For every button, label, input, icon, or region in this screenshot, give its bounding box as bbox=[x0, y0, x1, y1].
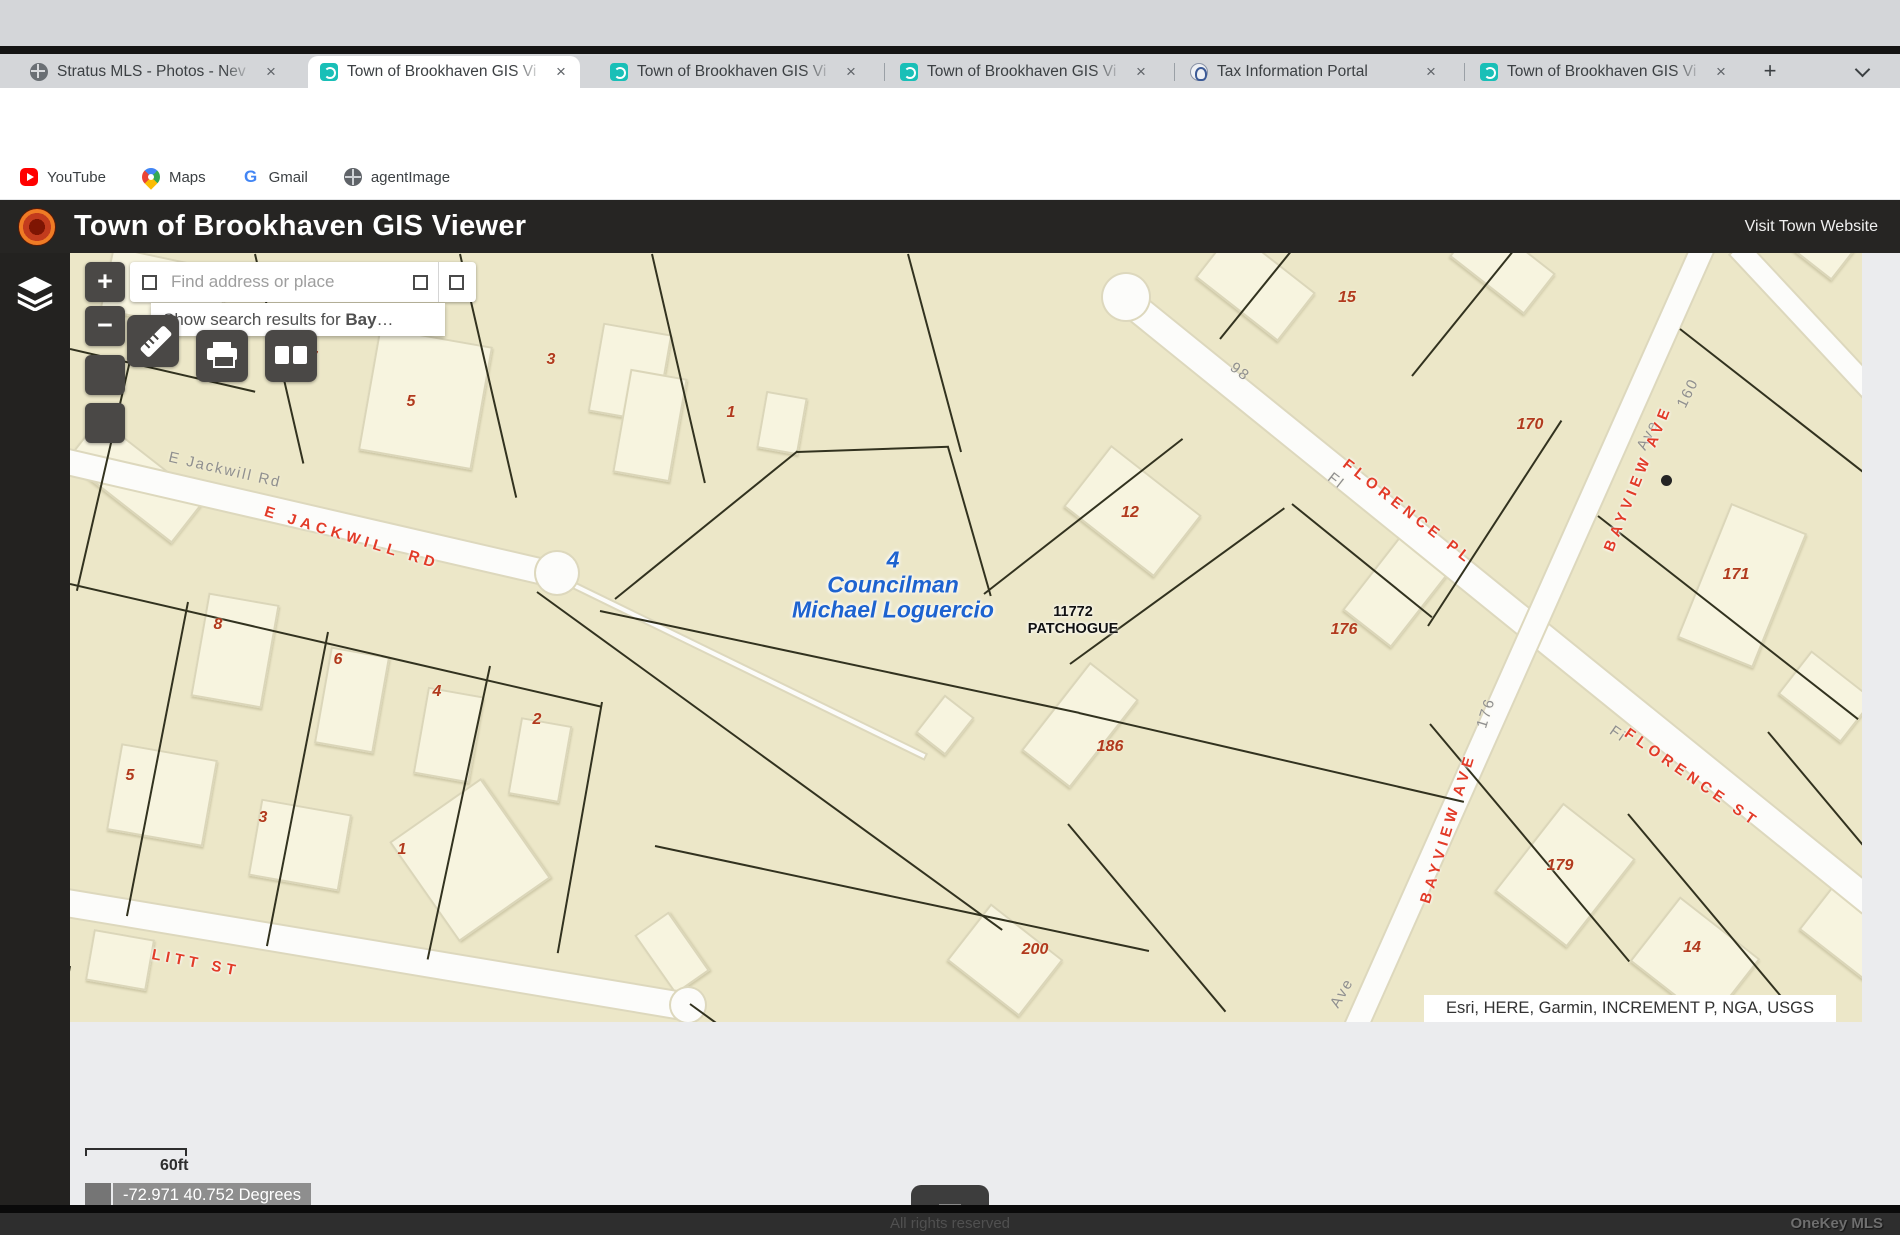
app-header: Town of Brookhaven GIS Viewer Visit Town… bbox=[0, 200, 1900, 253]
address-label-line: 11772 bbox=[1028, 604, 1119, 621]
tab-close-icon[interactable]: × bbox=[262, 62, 280, 82]
printer-icon bbox=[207, 348, 237, 360]
building-footprint bbox=[1677, 502, 1807, 667]
maps-icon bbox=[138, 164, 163, 189]
visit-town-website-link[interactable]: Visit Town Website bbox=[1745, 218, 1878, 236]
parcel-line bbox=[1079, 712, 1464, 803]
parcel-number: 1 bbox=[727, 404, 736, 422]
parcel-number: 15 bbox=[1338, 289, 1356, 307]
gis-favicon bbox=[320, 63, 338, 81]
gis-favicon bbox=[610, 63, 628, 81]
map-tool-button-1[interactable] bbox=[85, 355, 125, 395]
panel-right-icon bbox=[293, 346, 307, 364]
search-divider bbox=[438, 262, 439, 302]
parcel-number: 4 bbox=[433, 683, 442, 701]
map-tool-button-2[interactable] bbox=[85, 403, 125, 443]
parcel-line bbox=[536, 591, 1002, 931]
tab-separator bbox=[884, 63, 885, 81]
council-label-line: 4 bbox=[792, 548, 994, 573]
building-footprint bbox=[1021, 662, 1139, 788]
tab-6[interactable]: Town of Brookhaven GIS Vi× bbox=[1468, 56, 1740, 88]
point-marker bbox=[1661, 475, 1672, 486]
bookmark-agentimage[interactable]: agentImage bbox=[344, 168, 450, 186]
tab-title: Stratus MLS - Photos - Nev bbox=[57, 63, 253, 81]
bookmark-label: Maps bbox=[169, 169, 206, 186]
tax-favicon bbox=[1190, 63, 1208, 81]
search-bar[interactable] bbox=[130, 262, 476, 302]
zoom-in-button[interactable]: + bbox=[85, 262, 125, 302]
map-viewport[interactable]: E Jackwill Rd98160AveFl176FiAveE JACKWIL… bbox=[0, 253, 1900, 1205]
scale-bar bbox=[85, 1148, 187, 1156]
parcel-line bbox=[907, 254, 962, 453]
window-divider bbox=[0, 46, 1900, 54]
street-label: BAYVIEW AVE bbox=[1417, 750, 1479, 905]
parcel-line bbox=[1067, 823, 1226, 1012]
tab-title: Tax Information Portal bbox=[1217, 63, 1413, 81]
street-label: LITT ST bbox=[150, 946, 242, 980]
parcel-number: 171 bbox=[1723, 566, 1750, 584]
parcel-number: 8 bbox=[214, 616, 223, 634]
measure-tool-button[interactable] bbox=[127, 315, 179, 367]
parcel-line bbox=[600, 610, 1080, 714]
building-footprint bbox=[412, 687, 483, 784]
building-footprint bbox=[1195, 253, 1316, 342]
bookmark-youtube[interactable]: YouTube bbox=[20, 168, 106, 186]
page-title: Town of Brookhaven GIS Viewer bbox=[74, 210, 526, 243]
building-footprint bbox=[1778, 650, 1862, 743]
browser-toolbar: ← → ↻ ⓘ File /Users/sherylhecht/Download… bbox=[0, 88, 1900, 155]
map-tiles[interactable]: E Jackwill Rd98160AveFl176FiAveE JACKWIL… bbox=[70, 253, 1862, 1022]
building-footprint bbox=[389, 778, 551, 942]
footer-bar: All rights reserved OneKey MLS bbox=[0, 1213, 1900, 1235]
search-icon[interactable] bbox=[413, 275, 428, 290]
map-attribution: Esri, HERE, Garmin, INCREMENT P, NGA, US… bbox=[1424, 995, 1836, 1022]
new-tab-button[interactable]: + bbox=[1756, 58, 1784, 86]
parcel-number: 170 bbox=[1517, 416, 1544, 434]
parcel-number: 14 bbox=[1683, 939, 1701, 957]
bookmark-label: Gmail bbox=[269, 169, 308, 186]
parcel-number: 179 bbox=[1547, 857, 1574, 875]
tab-close-icon[interactable]: × bbox=[1712, 62, 1730, 82]
building-footprint bbox=[508, 717, 573, 803]
parcel-line bbox=[70, 966, 71, 1022]
parcel-number: 2 bbox=[533, 711, 542, 729]
gis-favicon bbox=[900, 63, 918, 81]
town-seal-logo bbox=[18, 208, 56, 246]
building-footprint bbox=[314, 647, 390, 754]
bookmark-maps[interactable]: Maps bbox=[142, 168, 206, 186]
building-footprint bbox=[915, 694, 974, 755]
suggestion-ellipsis: … bbox=[377, 310, 394, 329]
tab-2[interactable]: Town of Brookhaven GIS Vi× bbox=[308, 56, 580, 88]
council-label-line: Councilman bbox=[792, 573, 994, 598]
print-tool-button[interactable] bbox=[196, 330, 248, 382]
zip-place-label: 11772PATCHOGUE bbox=[1028, 604, 1119, 638]
tab-title: Town of Brookhaven GIS Vi bbox=[927, 63, 1123, 81]
parcel-number: 12 bbox=[1121, 504, 1139, 522]
parcel-line bbox=[797, 446, 949, 453]
tab-4[interactable]: Town of Brookhaven GIS Vi× bbox=[888, 56, 1160, 88]
parcel-number: 176 bbox=[1331, 621, 1358, 639]
suggestion-term: Bay bbox=[345, 310, 376, 329]
parcel-number: 5 bbox=[407, 393, 416, 411]
tab-3[interactable]: Town of Brookhaven GIS Vi× bbox=[598, 56, 870, 88]
search-menu-icon[interactable] bbox=[142, 275, 157, 290]
layers-icon[interactable] bbox=[16, 275, 54, 311]
scale-label: 60ft bbox=[160, 1157, 188, 1175]
panel-left-icon bbox=[275, 346, 289, 364]
parcel-number: 5 bbox=[126, 767, 135, 785]
parcel-number: 1 bbox=[398, 841, 407, 859]
tab-separator bbox=[1464, 63, 1465, 81]
globe2-icon bbox=[344, 168, 362, 186]
road-end bbox=[1103, 274, 1149, 320]
tab-title: Town of Brookhaven GIS Vi bbox=[347, 63, 543, 81]
tab-close-icon[interactable]: × bbox=[842, 62, 860, 82]
youtube-icon bbox=[20, 168, 38, 186]
building-footprint bbox=[85, 929, 155, 991]
council-district-label: 4CouncilmanMichael Loguercio bbox=[792, 548, 994, 623]
tab-close-icon[interactable]: × bbox=[552, 62, 570, 82]
tab-5[interactable]: Tax Information Portal× bbox=[1178, 56, 1450, 88]
tab-close-icon[interactable]: × bbox=[1132, 62, 1150, 82]
footer-divider bbox=[0, 1205, 1900, 1213]
parcel-number: 200 bbox=[1022, 941, 1049, 959]
parcel-number: 6 bbox=[334, 651, 343, 669]
tab-strip: Stratus MLS - Photos - Nev×Town of Brook… bbox=[0, 54, 1900, 88]
search-submit-icon[interactable] bbox=[449, 275, 464, 290]
tab-close-icon[interactable]: × bbox=[1422, 62, 1440, 82]
building-footprint bbox=[1783, 253, 1858, 281]
building-footprint bbox=[756, 391, 807, 455]
rights-text: All rights reserved bbox=[0, 1215, 1900, 1232]
tab-separator bbox=[1174, 63, 1175, 81]
bookmark-label: agentImage bbox=[371, 169, 450, 186]
road-end bbox=[536, 552, 578, 594]
gis-favicon bbox=[1480, 63, 1498, 81]
bookmark-gmail[interactable]: GGmail bbox=[242, 168, 308, 186]
basemap-tool-button[interactable] bbox=[265, 330, 317, 382]
tab-title: Town of Brookhaven GIS Vi bbox=[1507, 63, 1703, 81]
ruler-icon bbox=[139, 325, 172, 358]
parcel-number: 186 bbox=[1097, 738, 1124, 756]
building-footprint bbox=[634, 911, 710, 994]
tab-1[interactable]: Stratus MLS - Photos - Nev× bbox=[18, 56, 290, 88]
bookmark-label: YouTube bbox=[47, 169, 106, 186]
gmailG-icon: G bbox=[242, 168, 260, 186]
parcel-line bbox=[266, 632, 329, 947]
zoom-out-button[interactable]: − bbox=[85, 306, 125, 346]
bookmarks-bar: YouTubeMapsGGmailagentImage bbox=[0, 155, 1900, 200]
parcel-line bbox=[655, 845, 1149, 952]
address-label-line: PATCHOGUE bbox=[1028, 621, 1119, 638]
map-sidebar bbox=[0, 253, 70, 1205]
globe-favicon bbox=[30, 63, 48, 81]
mls-watermark: OneKey MLS bbox=[1790, 1215, 1883, 1232]
tab-title: Town of Brookhaven GIS Vi bbox=[637, 63, 833, 81]
building-footprint bbox=[106, 743, 218, 847]
parcel-line bbox=[689, 1003, 901, 1022]
council-label-line: Michael Loguercio bbox=[792, 598, 994, 623]
building-footprint bbox=[358, 326, 493, 469]
parcel-number: 3 bbox=[547, 351, 556, 369]
suggestion-prefix: Show search results for bbox=[163, 310, 345, 329]
basemap-street-label: 160 bbox=[1674, 375, 1703, 410]
tab-search-chevron-icon[interactable] bbox=[1852, 62, 1874, 80]
road-end bbox=[671, 988, 705, 1022]
search-input[interactable] bbox=[171, 272, 413, 292]
building-footprint bbox=[190, 592, 279, 708]
parcel-number: 3 bbox=[259, 809, 268, 827]
window-top-filler bbox=[0, 0, 1900, 46]
